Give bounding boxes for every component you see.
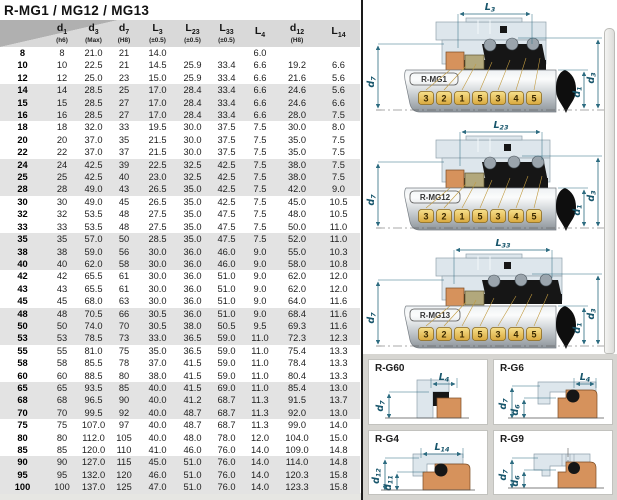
table-row: 8585120.011041.046.076.014.0109.014.8	[0, 444, 360, 456]
value-cell: 85	[108, 382, 140, 394]
table-row: 222237.03721.530.037.57.535.07.5	[0, 146, 360, 158]
value-cell: 25	[45, 171, 79, 183]
value-cell: 24.6	[277, 84, 317, 96]
value-cell: 105	[108, 432, 140, 444]
value-cell: 51.0	[210, 270, 243, 282]
value-cell: 17.0	[140, 109, 175, 121]
value-cell: 65	[45, 382, 79, 394]
table-row: 9595132.012046.051.076.014.0120.315.8	[0, 469, 360, 481]
value-cell: 14.8	[317, 444, 360, 456]
row-size-cell: 100	[0, 481, 45, 493]
value-cell: 80.4	[277, 370, 317, 382]
detail-card-rg9: R-G9 d7 d6	[493, 430, 613, 496]
value-cell: 40.0	[140, 394, 175, 406]
value-cell: 50	[45, 320, 79, 332]
table-row: 141428.52517.028.433.46.624.65.6	[0, 84, 360, 96]
value-cell: 13.7	[317, 394, 360, 406]
value-cell: 41.2	[175, 394, 210, 406]
callout-tag-number: 4	[513, 211, 518, 221]
value-cell: 63	[108, 295, 140, 307]
value-cell: 97	[108, 419, 140, 431]
value-cell: 42	[45, 270, 79, 282]
value-cell: 22.5	[140, 159, 175, 171]
value-cell: 30.5	[140, 320, 175, 332]
value-cell: 35.0	[175, 221, 210, 233]
value-cell: 26.5	[140, 183, 175, 195]
value-cell: 38.0	[140, 370, 175, 382]
value-cell: 55	[45, 345, 79, 357]
value-cell: 36.0	[175, 258, 210, 270]
value-cell: 7.5	[243, 159, 277, 171]
dim-d7: d7	[366, 312, 378, 324]
seat-detail-grid: R-G60 L4 d7 R-G6	[363, 354, 617, 500]
value-cell: 60	[45, 370, 79, 382]
value-cell: 13.3	[317, 370, 360, 382]
value-cell: 58	[108, 258, 140, 270]
row-size-cell: 16	[0, 109, 45, 121]
value-cell: 38	[45, 246, 79, 258]
table-row: 585885.57837.041.559.011.078.413.3	[0, 357, 360, 369]
value-cell: 32.5	[175, 159, 210, 171]
value-cell: 68	[45, 394, 79, 406]
value-cell: 51.0	[175, 481, 210, 493]
value-cell: 27	[108, 109, 140, 121]
row-size-cell: 22	[0, 146, 45, 158]
value-cell: 7.5	[317, 134, 360, 146]
callout-tag-number: 5	[531, 329, 536, 339]
value-cell: 51.0	[175, 456, 210, 468]
value-cell: 11.0	[243, 345, 277, 357]
value-cell: 33.0	[140, 332, 175, 344]
value-cell: 48.0	[277, 208, 317, 220]
value-cell: 40	[108, 171, 140, 183]
callout-tag-number: 3	[495, 93, 500, 103]
value-cell	[210, 47, 243, 59]
value-cell: 59.0	[210, 370, 243, 382]
row-size-cell: 68	[0, 394, 45, 406]
value-cell: 10	[45, 59, 79, 71]
value-cell: 52.0	[277, 233, 317, 245]
value-cell: 10.5	[317, 208, 360, 220]
value-cell: 120.0	[79, 444, 108, 456]
dim-L23: L23	[493, 120, 509, 132]
value-cell: 38.0	[277, 171, 317, 183]
value-cell: 127.0	[79, 456, 108, 468]
value-cell: 41.5	[175, 357, 210, 369]
col-header-d3: d3(Max)	[79, 20, 108, 47]
value-cell: 35.0	[175, 183, 210, 195]
value-cell: 46.0	[210, 246, 243, 258]
value-cell: 70	[108, 320, 140, 332]
row-size-cell: 53	[0, 332, 45, 344]
value-cell: 33	[45, 221, 79, 233]
value-cell: 125	[108, 481, 140, 493]
dim-d3: d3	[586, 72, 598, 84]
value-cell: 48	[108, 221, 140, 233]
dim-d12: d12	[371, 468, 383, 484]
row-size-cell: 65	[0, 382, 45, 394]
value-cell: 19.5	[140, 121, 175, 133]
row-size-cell: 90	[0, 456, 45, 468]
value-cell: 9.0	[317, 183, 360, 195]
table-row: 161628.52717.028.433.46.628.07.5	[0, 109, 360, 121]
table-row: 100100137.012547.051.076.014.0123.315.8	[0, 481, 360, 493]
value-cell: 115	[108, 456, 140, 468]
value-cell: 59.0	[210, 345, 243, 357]
value-cell: 40.0	[140, 382, 175, 394]
value-cell: 99.5	[79, 407, 108, 419]
value-cell: 85.4	[277, 382, 317, 394]
seat-drawing-rg6: L4 d7 d6	[494, 372, 612, 424]
table-body: 8821.02114.06.0101022.52114.525.933.46.6…	[0, 47, 360, 494]
value-cell: 62.0	[277, 270, 317, 282]
value-cell: 28.5	[79, 84, 108, 96]
value-cell: 13.0	[317, 407, 360, 419]
value-cell: 42.5	[79, 159, 108, 171]
value-cell: 68.0	[79, 295, 108, 307]
value-cell: 30.5	[140, 308, 175, 320]
value-cell: 49.0	[79, 183, 108, 195]
value-cell: 9.0	[243, 246, 277, 258]
value-cell: 21	[108, 59, 140, 71]
row-size-cell: 10	[0, 59, 45, 71]
table-row: 242442.53922.532.542.57.538.07.5	[0, 159, 360, 171]
value-cell: 55.0	[277, 246, 317, 258]
value-cell: 7.5	[243, 183, 277, 195]
value-cell: 7.5	[243, 171, 277, 183]
catalog-page: R-MG1 / MG12 / MG13 d1(h6) d3(Max) d7(H8…	[0, 0, 617, 500]
value-cell: 65.5	[79, 283, 108, 295]
value-cell: 92.0	[277, 407, 317, 419]
callout-tag-number: 5	[477, 93, 482, 103]
value-cell: 35.0	[140, 345, 175, 357]
value-cell: 6.6	[243, 72, 277, 84]
value-cell: 14.0	[243, 481, 277, 493]
table-row: 121225.02315.025.933.46.621.65.6	[0, 72, 360, 84]
value-cell: 25.9	[175, 59, 210, 71]
value-cell: 47.0	[140, 481, 175, 493]
value-cell: 24.6	[277, 97, 317, 109]
value-cell: 28.4	[175, 84, 210, 96]
value-cell: 28.0	[277, 109, 317, 121]
value-cell: 61	[108, 270, 140, 282]
value-cell: 41.0	[140, 444, 175, 456]
table-row: 202037.03521.530.037.57.535.07.5	[0, 134, 360, 146]
value-cell: 40.0	[140, 432, 175, 444]
value-cell: 53	[45, 332, 79, 344]
value-cell: 33.4	[210, 72, 243, 84]
shaft: R-MG13	[405, 306, 556, 348]
value-cell: 81.0	[79, 345, 108, 357]
row-size-cell: 33	[0, 221, 45, 233]
value-cell: 6.6	[317, 97, 360, 109]
row-size-cell: 45	[0, 295, 45, 307]
value-cell: 109.0	[277, 444, 317, 456]
value-cell: 14	[45, 84, 79, 96]
value-cell: 11.0	[243, 332, 277, 344]
table-row: 333353.54827.535.047.57.550.011.0	[0, 221, 360, 233]
value-cell: 45.0	[277, 196, 317, 208]
value-cell: 27	[108, 97, 140, 109]
value-cell: 28.5	[140, 233, 175, 245]
value-cell: 32.0	[79, 121, 108, 133]
value-cell: 46.0	[175, 444, 210, 456]
value-cell: 12.3	[317, 332, 360, 344]
row-size-cell: 55	[0, 345, 45, 357]
dimension-table: d1(h6) d3(Max) d7(H8) L3(±0.5) L23(±0.5)…	[0, 20, 360, 494]
row-size-cell: 40	[0, 258, 45, 270]
seal-diagram-rmg1: R-MG1 3215345 d7 L3 d1 d3	[363, 0, 617, 118]
value-cell: 95	[45, 469, 79, 481]
row-size-cell: 30	[0, 196, 45, 208]
shaft: R-MG12	[405, 188, 556, 230]
row-size-cell: 70	[0, 407, 45, 419]
value-cell: 74.0	[79, 320, 108, 332]
col-header-L33: L33(±0.5)	[210, 20, 243, 47]
table-row: 606088.58038.041.559.011.080.413.3	[0, 370, 360, 382]
value-cell: 9.0	[243, 270, 277, 282]
value-cell: 37.0	[79, 134, 108, 146]
value-cell: 59.0	[79, 246, 108, 258]
table-row: 424265.56130.036.051.09.062.012.0	[0, 270, 360, 282]
value-cell: 62.0	[79, 258, 108, 270]
callout-tag-number: 3	[495, 329, 500, 339]
callout-tag-number: 3	[423, 93, 428, 103]
value-cell: 23.0	[140, 171, 175, 183]
callout-tags: 3215345	[419, 210, 542, 223]
value-cell: 56	[108, 246, 140, 258]
value-cell: 13.3	[317, 345, 360, 357]
value-cell: 64.0	[277, 295, 317, 307]
row-size-cell: 8	[0, 47, 45, 59]
callout-tag-number: 1	[459, 211, 464, 221]
callout-tag-number: 1	[459, 93, 464, 103]
value-cell: 99.0	[277, 419, 317, 431]
table-row: 686896.59040.041.268.711.391.513.7	[0, 394, 360, 406]
value-cell: 51.0	[175, 469, 210, 481]
table-row: 454568.06330.036.051.09.064.011.6	[0, 295, 360, 307]
value-cell: 36.0	[175, 246, 210, 258]
value-cell: 73	[108, 332, 140, 344]
value-cell: 24	[45, 159, 79, 171]
value-cell: 59.0	[210, 332, 243, 344]
value-cell: 78	[108, 357, 140, 369]
value-cell: 7.5	[243, 134, 277, 146]
value-cell: 17.0	[140, 97, 175, 109]
value-cell: 33.4	[210, 59, 243, 71]
value-cell: 68.4	[277, 308, 317, 320]
value-cell: 58.0	[277, 258, 317, 270]
value-cell: 25	[108, 84, 140, 96]
row-size-cell: 28	[0, 183, 45, 195]
value-cell: 28.4	[175, 97, 210, 109]
value-cell: 40.0	[140, 419, 175, 431]
col-header-d1: d1(h6)	[45, 20, 79, 47]
value-cell: 40	[45, 258, 79, 270]
value-cell: 42.5	[210, 171, 243, 183]
row-size-cell: 42	[0, 270, 45, 282]
value-cell: 85	[45, 444, 79, 456]
dim-L4: L4	[439, 372, 450, 384]
value-cell: 19.2	[277, 59, 317, 71]
value-cell: 91.5	[277, 394, 317, 406]
value-cell: 35	[108, 134, 140, 146]
callout-tag-number: 3	[495, 211, 500, 221]
value-cell: 27.5	[140, 208, 175, 220]
value-cell: 15.8	[317, 469, 360, 481]
value-cell: 37.0	[79, 146, 108, 158]
value-cell: 36.5	[175, 345, 210, 357]
table-row: 9090127.011545.051.076.014.0114.014.8	[0, 456, 360, 468]
value-cell: 50	[108, 233, 140, 245]
callout-tag-number: 3	[423, 211, 428, 221]
value-cell: 33	[108, 121, 140, 133]
dim-L33: L33	[495, 238, 511, 250]
value-cell: 13.3	[317, 357, 360, 369]
value-cell: 104.0	[277, 432, 317, 444]
col-header-size	[0, 20, 45, 47]
value-cell: 53.5	[79, 208, 108, 220]
value-cell: 62.0	[277, 283, 317, 295]
value-cell: 7.5	[243, 121, 277, 133]
dim-d3: d3	[586, 190, 598, 202]
value-cell: 120	[108, 469, 140, 481]
value-cell	[317, 47, 360, 59]
table-row: 7575107.09740.048.768.711.399.014.0	[0, 419, 360, 431]
col-header-L23: L23(±0.5)	[175, 20, 210, 47]
value-cell: 10.5	[317, 196, 360, 208]
value-cell: 47.5	[210, 233, 243, 245]
value-cell: 30.0	[140, 283, 175, 295]
dim-d7: d7	[498, 469, 510, 481]
value-cell: 8	[45, 47, 79, 59]
value-cell: 14.0	[243, 456, 277, 468]
value-cell: 36.0	[175, 295, 210, 307]
value-cell: 120.3	[277, 469, 317, 481]
row-size-cell: 35	[0, 233, 45, 245]
table-row: 484870.56630.536.051.09.068.411.6	[0, 308, 360, 320]
value-cell: 75	[45, 419, 79, 431]
value-cell: 114.0	[277, 456, 317, 468]
callout-tag-number: 1	[459, 329, 464, 339]
value-cell: 11.3	[243, 407, 277, 419]
value-cell: 35.0	[175, 208, 210, 220]
value-cell: 96.5	[79, 394, 108, 406]
value-cell: 30.0	[140, 295, 175, 307]
shaft: R-MG1	[405, 70, 556, 112]
row-size-cell: 14	[0, 84, 45, 96]
value-cell: 42.5	[79, 171, 108, 183]
table-row: 353557.05028.535.047.57.552.011.0	[0, 233, 360, 245]
value-cell: 6.6	[317, 59, 360, 71]
value-cell: 16	[45, 109, 79, 121]
value-cell: 42.5	[210, 183, 243, 195]
value-cell: 21.5	[140, 146, 175, 158]
col-header-L3: L3(±0.5)	[140, 20, 175, 47]
value-cell: 11.6	[317, 308, 360, 320]
row-size-cell: 43	[0, 283, 45, 295]
value-cell: 48	[45, 308, 79, 320]
row-size-cell: 32	[0, 208, 45, 220]
value-cell: 7.5	[243, 208, 277, 220]
value-cell: 70	[45, 407, 79, 419]
value-cell: 42.0	[277, 183, 317, 195]
value-cell: 6.6	[243, 84, 277, 96]
value-cell: 28	[45, 183, 79, 195]
value-cell: 51.0	[210, 295, 243, 307]
value-cell: 11.0	[317, 221, 360, 233]
dim-d3: d3	[586, 308, 598, 320]
value-cell: 53.5	[79, 221, 108, 233]
value-cell: 72.3	[277, 332, 317, 344]
callout-tag-number: 2	[441, 211, 446, 221]
value-cell: 48	[108, 208, 140, 220]
value-cell: 68.7	[210, 407, 243, 419]
value-cell: 5.6	[317, 84, 360, 96]
table-row: 101022.52114.525.933.46.619.26.6	[0, 59, 360, 71]
value-cell: 69.0	[210, 382, 243, 394]
value-cell: 80	[45, 432, 79, 444]
value-cell: 10.8	[317, 258, 360, 270]
value-cell: 28.5	[79, 109, 108, 121]
value-cell: 36.0	[175, 283, 210, 295]
row-size-cell: 25	[0, 171, 45, 183]
value-cell: 22.5	[79, 59, 108, 71]
value-cell: 30.0	[140, 246, 175, 258]
value-cell: 9.0	[243, 295, 277, 307]
value-cell: 33.4	[210, 84, 243, 96]
value-cell: 10.3	[317, 246, 360, 258]
value-cell: 78.5	[79, 332, 108, 344]
value-cell: 123.3	[277, 481, 317, 493]
page-title: R-MG1 / MG12 / MG13	[0, 0, 361, 20]
value-cell: 23	[108, 72, 140, 84]
page-edge-decoration	[604, 28, 615, 354]
value-cell: 40.0	[140, 407, 175, 419]
value-cell: 68.7	[210, 394, 243, 406]
value-cell: 14.5	[140, 59, 175, 71]
callout-tag-number: 4	[513, 93, 518, 103]
value-cell: 59.0	[210, 357, 243, 369]
row-size-cell: 58	[0, 357, 45, 369]
dim-d7: d7	[366, 76, 378, 88]
table-row: 282849.04326.535.042.57.542.09.0	[0, 183, 360, 195]
detail-card-rg4: R-G4 L14 d12 d11	[368, 430, 488, 496]
value-cell: 35.0	[175, 196, 210, 208]
table-row: 404062.05830.036.046.09.058.010.8	[0, 258, 360, 270]
row-size-cell: 18	[0, 121, 45, 133]
value-cell: 85.5	[79, 357, 108, 369]
value-cell: 6.6	[243, 59, 277, 71]
col-header-L4: L4	[243, 20, 277, 47]
value-cell: 76.0	[210, 444, 243, 456]
value-cell: 48.7	[175, 419, 210, 431]
row-size-cell: 80	[0, 432, 45, 444]
value-cell: 32.5	[175, 171, 210, 183]
row-size-cell: 20	[0, 134, 45, 146]
value-cell: 88.5	[79, 370, 108, 382]
value-cell: 30.0	[140, 258, 175, 270]
value-cell: 7.5	[317, 171, 360, 183]
value-cell: 7.5	[243, 146, 277, 158]
value-cell: 66	[108, 308, 140, 320]
value-cell: 11.3	[243, 419, 277, 431]
value-cell: 14.0	[317, 419, 360, 431]
value-cell: 15.8	[317, 481, 360, 493]
row-size-cell: 24	[0, 159, 45, 171]
value-cell: 36.0	[175, 308, 210, 320]
value-cell: 46.0	[140, 469, 175, 481]
